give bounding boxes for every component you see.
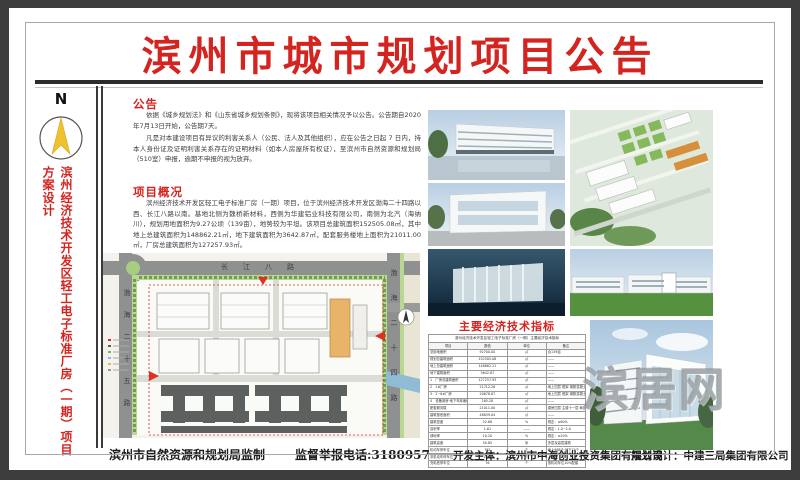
poster-paper: 滨州市城市规划项目公告 N 滨州经济技术开发区轻工电子标准厂房（一期）项目方案设… — [9, 8, 791, 470]
render-street-view — [428, 183, 565, 246]
north-compass: N — [39, 92, 83, 176]
render-aerial-view — [570, 110, 713, 246]
indicators-header-row: 项目数值单位备注 — [429, 343, 586, 350]
poster-frame: 滨州市城市规划项目公告 N 滨州经济技术开发区轻工电子标准厂房（一期）项目方案设… — [0, 0, 800, 480]
announcement-para1: 依据《城乡规划法》和《山东省城乡规划条例》，现将该项目相关情况予以公告。公告期自… — [133, 110, 421, 131]
road-label-bohai-25: 渤海二十五路 — [122, 289, 132, 421]
site-plan-map: 长江八路 渤海二十五路 渤海二十四路 — [103, 253, 420, 438]
project-vertical-title: 滨州经济技术开发区轻工电子标准厂房（一期）项目方案设计 — [57, 166, 75, 466]
compass-n-label: N — [39, 92, 83, 106]
footer-designer: 规划设计：中建三局集团有限公司 — [631, 448, 789, 463]
render-riverside-view — [428, 110, 565, 180]
overview-body: 滨州经济技术开发区轻工电子标准厂房（一期）项目，位于滨州经济技术开发区渤海二十四… — [133, 198, 421, 253]
road-label-changjiang-8: 长江八路 — [221, 262, 309, 272]
footer-producer: 滨州市自然资源和规划局监制 — [109, 446, 265, 463]
sidebar-divider-line — [96, 86, 98, 448]
overview-para1: 滨州经济技术开发区轻工电子标准厂房（一期）项目，位于滨州经济技术开发区渤海二十四… — [133, 198, 421, 251]
road-label-bohai-24: 渤海二十四路 — [389, 269, 399, 419]
announcement-para2: 凡是对本建设项目有异议的利害关系人（公民、法人及其他组织），应在公告之日起 7 … — [133, 133, 421, 165]
compass-icon — [39, 106, 83, 170]
indicators-heading: 主要经济技术指标 — [428, 318, 586, 334]
render-night-view — [428, 249, 565, 316]
announcement-body: 依据《城乡规划法》和《山东省城乡规划条例》，现将该项目相关情况予以公告。公告期自… — [133, 110, 421, 167]
title-divider — [35, 80, 763, 84]
render-field-view — [570, 249, 713, 316]
title-divider-thin — [35, 87, 763, 88]
watermark: 滨居网 — [583, 354, 727, 420]
indicators-table-title: 滨州经济技术开发区轻工电子标准厂房（一期）主要经济技术指标 — [428, 334, 586, 342]
page-title: 滨州市城市规划项目公告 — [9, 24, 791, 82]
footer-hotline: 监督举报电话:3180957 — [295, 446, 430, 463]
site-plan-drawing — [103, 253, 420, 438]
